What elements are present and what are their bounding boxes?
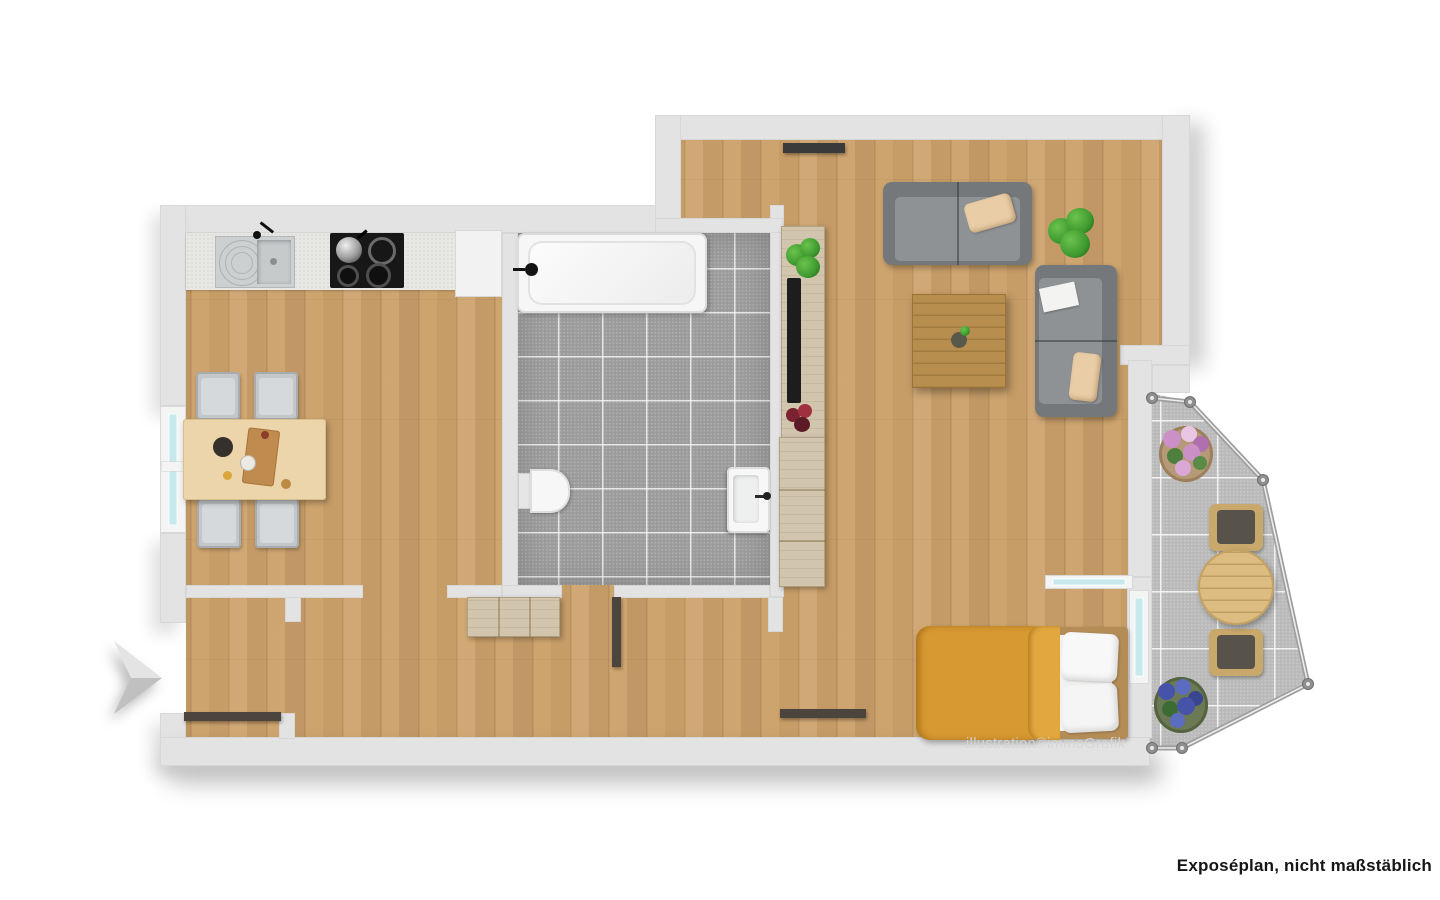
vase-sprig <box>960 326 970 336</box>
bathroom-door-leaf <box>612 597 621 667</box>
sideboard-divider <box>779 489 825 491</box>
bathroom-sink <box>727 467 770 533</box>
wall-connector <box>655 115 681 233</box>
coffee-table <box>912 294 1006 388</box>
food-item <box>223 471 232 480</box>
kitchen-cabinet <box>455 230 502 297</box>
window-mullion <box>162 462 184 471</box>
tub-faucet-icon <box>525 263 538 276</box>
chair-seat <box>259 378 293 415</box>
plant-leaf <box>800 238 820 258</box>
wall-shelf <box>783 143 845 153</box>
dining-chair <box>196 372 240 420</box>
watermark-credit: illustration©immoGrafik <box>966 736 1146 752</box>
sofa-cushion-split <box>957 182 959 265</box>
burner-icon <box>366 263 391 288</box>
bed-duvet <box>916 626 1036 740</box>
faucet-icon <box>763 492 771 500</box>
dining-table <box>183 419 326 500</box>
kitchen-sink <box>215 236 295 288</box>
media-unit-plant <box>784 238 826 280</box>
sideboard-divider <box>779 540 825 542</box>
flower <box>798 404 812 418</box>
dining-chair <box>255 498 299 548</box>
bed-pillow <box>1061 683 1119 734</box>
toilet <box>518 469 570 513</box>
tv-icon <box>787 278 801 403</box>
bathtub-basin <box>528 241 696 305</box>
dining-chair <box>254 372 298 420</box>
sink-drain <box>270 258 277 265</box>
toilet-bowl <box>530 469 570 513</box>
dining-chair <box>197 498 241 548</box>
wall-left-upper <box>160 205 186 406</box>
plant-leaf <box>1060 230 1090 258</box>
plan-disclaimer-label: Exposéplan, nicht maßstäblich <box>1012 856 1432 876</box>
plant-leaf <box>796 256 820 278</box>
living-sideboard <box>779 437 825 587</box>
chair-seat <box>202 504 236 543</box>
flower <box>794 417 810 432</box>
wall-left-middle <box>160 533 186 623</box>
wall-bedroom-stub <box>768 597 783 632</box>
entrance-door-leaf <box>184 712 281 721</box>
hall-sideboard <box>467 597 560 637</box>
bed-duvet-fold <box>1028 626 1060 740</box>
wall-bathroom-bottom-b <box>614 585 770 598</box>
entrance-arrow-icon <box>105 630 175 725</box>
bedroom-door-leaf <box>780 709 866 718</box>
plate <box>213 437 233 457</box>
faucet-icon <box>253 231 261 239</box>
tub-faucet-stem <box>513 268 525 271</box>
wall-top-left-section <box>160 205 660 233</box>
sofa-cushion-split <box>1035 340 1117 342</box>
sink-drainboard <box>231 252 253 274</box>
living-plant <box>1048 206 1098 260</box>
wall-top-right-section <box>655 115 1190 140</box>
chair-seat <box>201 378 235 415</box>
burner-icon <box>337 265 359 287</box>
sideboard-divider <box>529 597 531 637</box>
kettle-icon <box>336 237 362 263</box>
wall-entry-stub <box>279 713 295 739</box>
media-unit-flowers <box>786 404 820 434</box>
sofa-two-seater <box>883 182 1032 265</box>
wall-alcove-bottom <box>655 218 783 233</box>
sofa-corner-seater <box>1035 265 1117 417</box>
wall-kitchen-bottom-a <box>186 585 363 598</box>
kitchen-cooktop <box>330 233 404 288</box>
sideboard-divider <box>498 597 500 637</box>
balcony-railing <box>1120 385 1330 765</box>
food-item <box>261 431 269 439</box>
sofa-pillow <box>1068 351 1102 402</box>
floor-plan-canvas: illustration©immoGrafik Exposéplan, nich… <box>0 0 1440 900</box>
wall-kitchen-bathroom-divider <box>502 233 518 597</box>
wall-right-outer <box>1162 115 1190 360</box>
window-glass <box>1052 578 1126 586</box>
cup <box>240 455 256 471</box>
burner-icon <box>368 237 396 265</box>
chair-seat <box>260 504 294 543</box>
wall-vestibule-stub <box>285 597 301 622</box>
sink-basin <box>733 475 759 523</box>
bed-pillow <box>1061 632 1119 683</box>
bathtub <box>517 233 707 313</box>
food-item <box>281 479 291 489</box>
